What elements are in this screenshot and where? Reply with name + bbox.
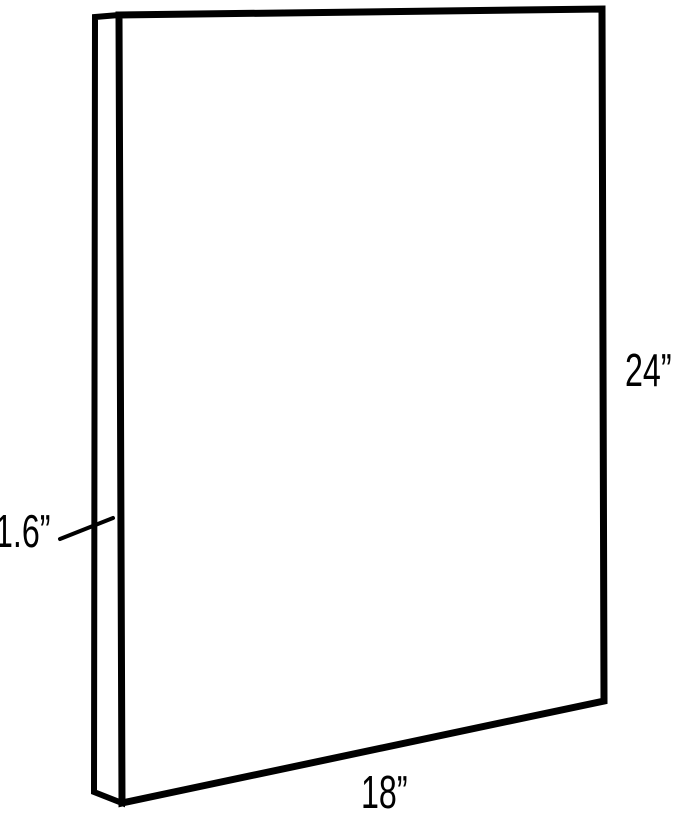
panel-front-face bbox=[119, 9, 604, 803]
panel-outline-drawing bbox=[0, 0, 679, 815]
dimension-diagram: 24” 1.6” 18” bbox=[0, 0, 679, 815]
width-dimension-label: 18” bbox=[361, 769, 408, 815]
depth-dimension-label: 1.6” bbox=[0, 508, 50, 554]
height-dimension-label: 24” bbox=[625, 347, 672, 393]
